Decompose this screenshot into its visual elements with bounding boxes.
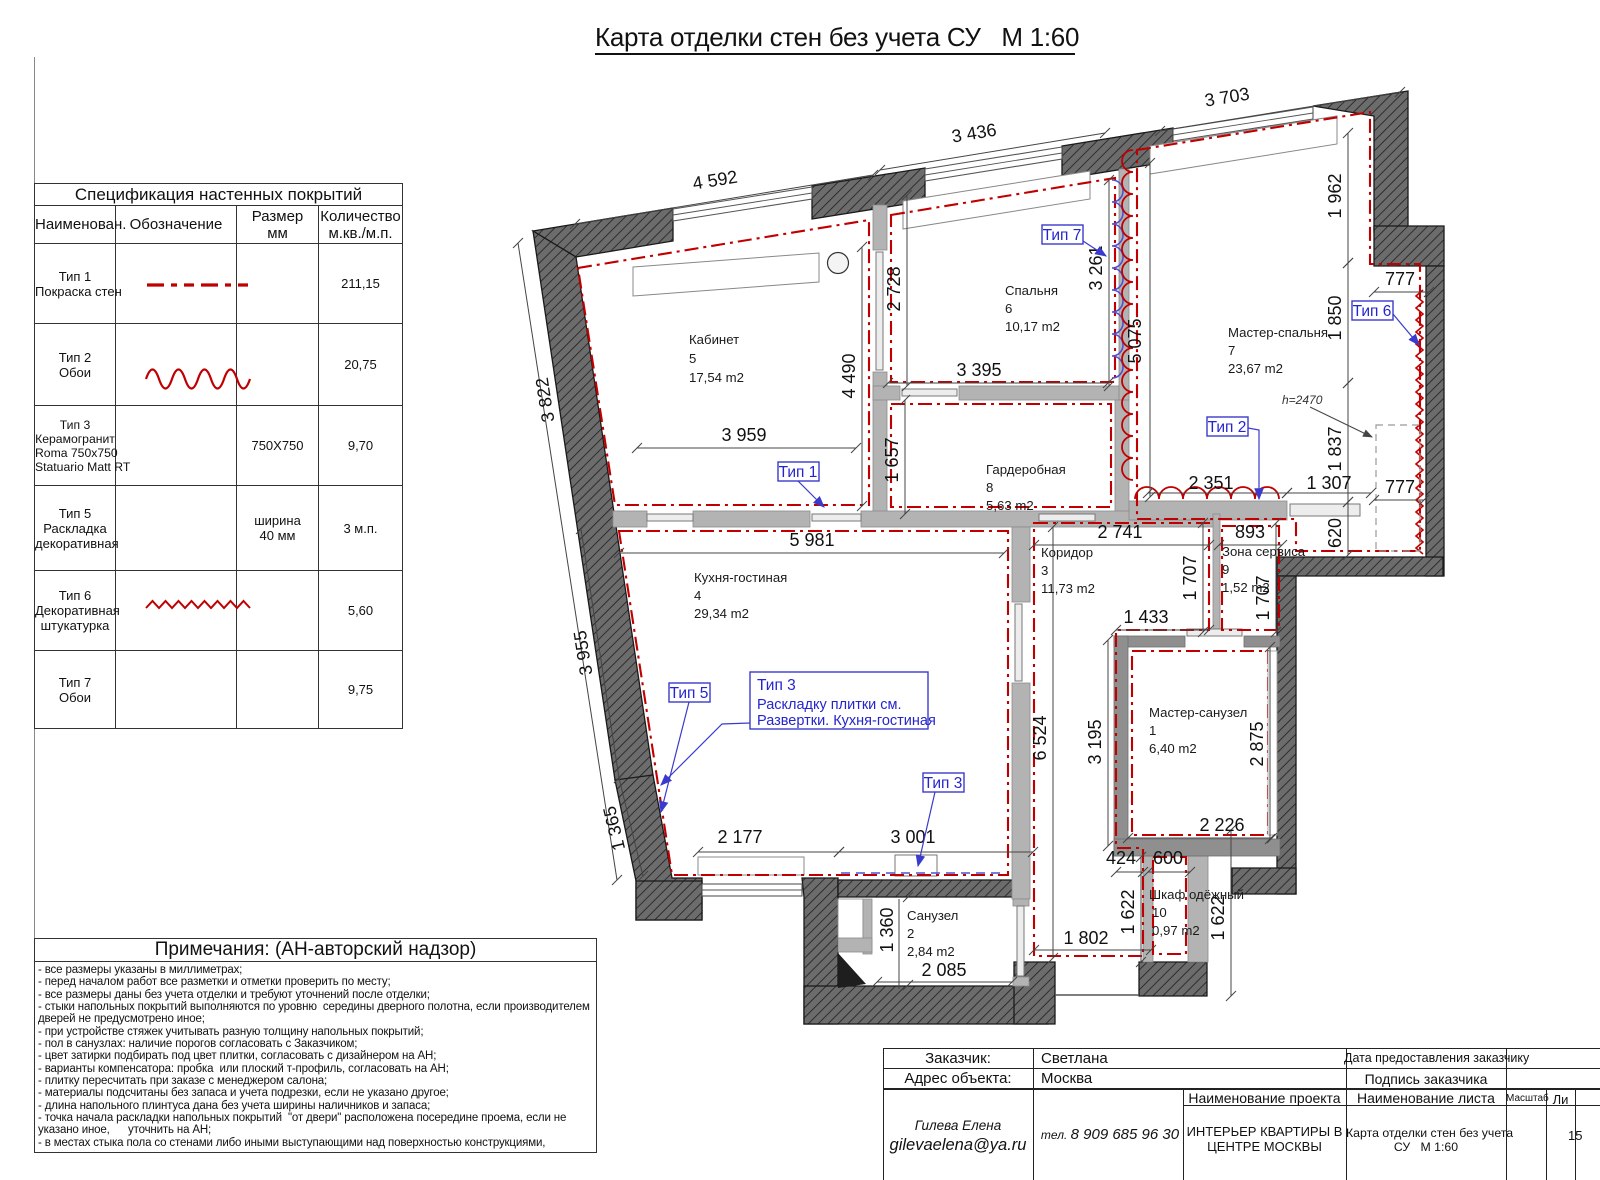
svg-text:5 981: 5 981 bbox=[789, 530, 834, 550]
svg-text:Мастер-санузел: Мастер-санузел bbox=[1149, 705, 1247, 720]
svg-text:424: 424 bbox=[1106, 848, 1136, 868]
svg-text:Тип 5: Тип 5 bbox=[670, 685, 709, 702]
svg-text:17,54 m2: 17,54 m2 bbox=[689, 370, 744, 385]
svg-text:Гардеробная: Гардеробная bbox=[986, 462, 1066, 477]
svg-text:h=2470: h=2470 bbox=[1282, 393, 1323, 407]
svg-text:3 436: 3 436 bbox=[950, 120, 998, 147]
svg-text:3 955: 3 955 bbox=[570, 629, 597, 677]
svg-text:11,73 m2: 11,73 m2 bbox=[1041, 581, 1095, 596]
svg-text:1 962: 1 962 bbox=[1325, 173, 1345, 218]
svg-text:1 433: 1 433 bbox=[1123, 607, 1168, 627]
svg-text:Санузел: Санузел bbox=[907, 908, 958, 923]
svg-text:1: 1 bbox=[1149, 723, 1156, 738]
svg-text:3 959: 3 959 bbox=[721, 425, 766, 445]
svg-text:1 837: 1 837 bbox=[1325, 426, 1345, 471]
svg-text:1 622: 1 622 bbox=[1118, 889, 1138, 934]
svg-text:1 657: 1 657 bbox=[882, 437, 902, 482]
svg-text:3 395: 3 395 bbox=[956, 360, 1001, 380]
svg-text:Кухня-гостиная: Кухня-гостиная bbox=[694, 570, 787, 585]
svg-text:2,84 m2: 2,84 m2 bbox=[907, 944, 955, 959]
svg-text:23,67 m2: 23,67 m2 bbox=[1228, 361, 1283, 376]
svg-text:1 360: 1 360 bbox=[877, 907, 897, 952]
svg-text:3 001: 3 001 bbox=[890, 827, 935, 847]
svg-text:8: 8 bbox=[986, 480, 993, 495]
svg-text:2 085: 2 085 bbox=[921, 960, 966, 980]
svg-text:10,17 m2: 10,17 m2 bbox=[1005, 319, 1060, 334]
svg-text:Спальня: Спальня bbox=[1005, 283, 1058, 298]
svg-text:3: 3 bbox=[1041, 563, 1048, 578]
svg-text:Развертки. Кухня-гостиная: Развертки. Кухня-гостиная bbox=[757, 713, 936, 729]
svg-text:Кабинет: Кабинет bbox=[689, 332, 739, 347]
svg-text:6,40 m2: 6,40 m2 bbox=[1149, 741, 1197, 756]
svg-text:2 226: 2 226 bbox=[1199, 815, 1244, 835]
svg-text:600: 600 bbox=[1153, 848, 1183, 868]
svg-text:6 524: 6 524 bbox=[1030, 715, 1050, 760]
svg-text:0,97 m2: 0,97 m2 bbox=[1152, 923, 1200, 938]
svg-text:Тип 3: Тип 3 bbox=[757, 677, 796, 694]
svg-text:Тип 1: Тип 1 bbox=[779, 464, 818, 481]
svg-text:2 351: 2 351 bbox=[1188, 473, 1233, 493]
svg-text:9: 9 bbox=[1222, 562, 1229, 577]
svg-text:1 307: 1 307 bbox=[1306, 473, 1351, 493]
svg-text:2 177: 2 177 bbox=[717, 827, 762, 847]
svg-text:Зона сервиса: Зона сервиса bbox=[1222, 544, 1306, 559]
svg-text:893: 893 bbox=[1235, 522, 1265, 542]
svg-text:Коридор: Коридор bbox=[1041, 545, 1093, 560]
svg-text:Тип 6: Тип 6 bbox=[1353, 303, 1392, 320]
svg-text:1,52 m2: 1,52 m2 bbox=[1222, 580, 1270, 595]
svg-text:Тип 2: Тип 2 bbox=[1208, 419, 1247, 436]
svg-text:7: 7 bbox=[1228, 343, 1235, 358]
svg-text:Шкаф одёжный: Шкаф одёжный bbox=[1149, 887, 1244, 902]
svg-text:5: 5 bbox=[689, 351, 696, 366]
svg-text:5,63 m2: 5,63 m2 bbox=[986, 498, 1034, 513]
svg-text:3 195: 3 195 bbox=[1085, 719, 1105, 764]
svg-text:4 592: 4 592 bbox=[691, 167, 739, 194]
svg-text:3 261: 3 261 bbox=[1086, 245, 1106, 290]
svg-text:Тип 7: Тип 7 bbox=[1043, 227, 1082, 244]
svg-text:1 622: 1 622 bbox=[1208, 895, 1228, 940]
svg-text:2: 2 bbox=[907, 926, 914, 941]
svg-text:3 703: 3 703 bbox=[1203, 84, 1251, 111]
svg-text:6: 6 bbox=[1005, 301, 1012, 316]
svg-text:29,34 m2: 29,34 m2 bbox=[694, 606, 749, 621]
svg-text:2 728: 2 728 bbox=[884, 266, 904, 311]
svg-text:2 741: 2 741 bbox=[1097, 522, 1142, 542]
svg-text:4 490: 4 490 bbox=[839, 353, 859, 398]
svg-text:3 822: 3 822 bbox=[532, 376, 559, 424]
svg-text:777: 777 bbox=[1385, 477, 1415, 497]
svg-text:Тип 3: Тип 3 bbox=[924, 775, 963, 792]
svg-text:5 075: 5 075 bbox=[1125, 318, 1145, 363]
svg-text:1 802: 1 802 bbox=[1063, 928, 1108, 948]
svg-text:Мастер-спальня: Мастер-спальня bbox=[1228, 325, 1328, 340]
svg-text:777: 777 bbox=[1385, 269, 1415, 289]
svg-text:620: 620 bbox=[1325, 518, 1345, 548]
svg-text:2 875: 2 875 bbox=[1247, 721, 1267, 766]
svg-text:10: 10 bbox=[1152, 905, 1167, 920]
svg-text:Раскладку плитки см.: Раскладку плитки см. bbox=[757, 697, 902, 713]
svg-text:1 707: 1 707 bbox=[1180, 555, 1200, 600]
svg-text:4: 4 bbox=[694, 588, 701, 603]
